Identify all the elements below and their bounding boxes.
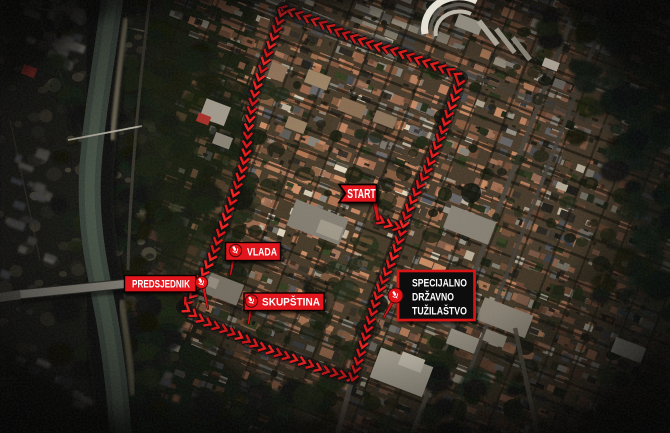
svg-text:START: START (347, 188, 376, 202)
svg-text:SPECIJALNO: SPECIJALNO (412, 278, 467, 290)
svg-text:SKUPŠTINA: SKUPŠTINA (262, 295, 320, 309)
svg-text:DRŽAVNO: DRŽAVNO (412, 290, 454, 303)
svg-text:TUŽILAŠTVO: TUŽILAŠTVO (412, 305, 467, 318)
svg-text:PREDSJEDNIK: PREDSJEDNIK (132, 279, 190, 291)
svg-text:VLADA: VLADA (247, 247, 277, 259)
